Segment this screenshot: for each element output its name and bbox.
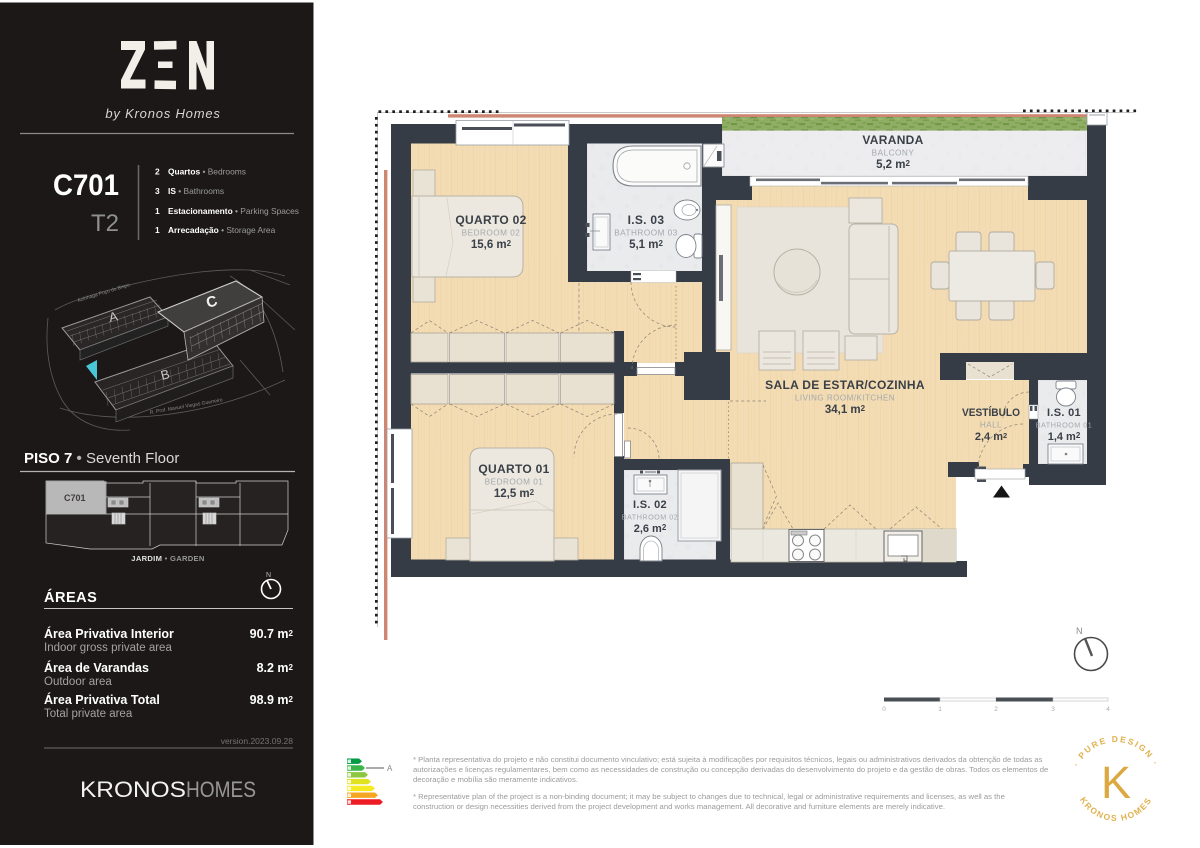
- svg-text:2,4 m2: 2,4 m2: [975, 431, 1007, 443]
- svg-text:BALCONY: BALCONY: [872, 149, 915, 158]
- svg-text:decoração e mobília são merame: decoração e mobília são meramente indica…: [413, 775, 578, 784]
- svg-text:BATHROOM 03: BATHROOM 03: [614, 229, 678, 238]
- svg-text:0: 0: [882, 706, 886, 713]
- svg-text:HALL: HALL: [980, 421, 1002, 430]
- svg-text:T2: T2: [91, 210, 119, 237]
- svg-text:SALA DE ESTAR/COZINHA: SALA DE ESTAR/COZINHA: [765, 378, 925, 392]
- svg-text:1: 1: [155, 206, 160, 216]
- svg-text:C701: C701: [64, 493, 86, 503]
- svg-text:N: N: [1076, 626, 1083, 636]
- svg-text:3: 3: [155, 186, 160, 196]
- svg-text:1: 1: [938, 706, 942, 713]
- svg-text:8.2 m2: 8.2 m2: [257, 661, 294, 675]
- svg-text:JARDIM • GARDEN: JARDIM • GARDEN: [131, 554, 204, 563]
- svg-text:Estacionamento • Parking Space: Estacionamento • Parking Spaces: [168, 206, 299, 216]
- svg-text:3: 3: [1051, 706, 1055, 713]
- svg-text:I.S. 01: I.S. 01: [1047, 407, 1081, 419]
- svg-text:IS • Bathrooms: IS • Bathrooms: [168, 186, 224, 196]
- svg-text:Total private area: Total private area: [44, 708, 133, 720]
- svg-text:Outdoor area: Outdoor area: [44, 676, 112, 688]
- svg-text:Arrecadação • Storage Area: Arrecadação • Storage Area: [168, 225, 276, 235]
- svg-text:VARANDA: VARANDA: [862, 133, 923, 147]
- svg-text:5,2 m2: 5,2 m2: [876, 159, 910, 171]
- svg-text:ÁREAS: ÁREAS: [44, 589, 97, 606]
- svg-text:I.S. 02: I.S. 02: [633, 499, 667, 511]
- svg-text:QUARTO 01: QUARTO 01: [478, 462, 549, 476]
- svg-text:15,6 m2: 15,6 m2: [471, 239, 512, 251]
- svg-text:A: A: [387, 764, 393, 773]
- svg-text:12,5 m2: 12,5 m2: [494, 488, 535, 500]
- svg-text:QUARTO 02: QUARTO 02: [455, 213, 526, 227]
- svg-text:C701: C701: [53, 169, 119, 202]
- svg-text:34,1 m2: 34,1 m2: [825, 404, 866, 416]
- svg-text:90.7 m2: 90.7 m2: [250, 627, 294, 641]
- svg-text:K: K: [1101, 757, 1131, 808]
- svg-text:BATHROOM 02: BATHROOM 02: [622, 513, 679, 522]
- svg-text:KRONOSHOMES: KRONOSHOMES: [80, 777, 256, 802]
- svg-text:BEDROOM 01: BEDROOM 01: [485, 478, 544, 487]
- svg-text:by Kronos Homes: by Kronos Homes: [105, 106, 220, 121]
- svg-text:N: N: [266, 572, 271, 579]
- svg-text:Área de Varandas: Área de Varandas: [44, 660, 149, 675]
- svg-text:construction or design necessi: construction or design necessities deriv…: [413, 802, 945, 811]
- svg-text:PISO 7 • Seventh Floor: PISO 7 • Seventh Floor: [24, 450, 179, 467]
- svg-text:Quartos • Bedrooms: Quartos • Bedrooms: [168, 167, 246, 177]
- svg-text:2: 2: [155, 167, 160, 177]
- svg-text:1: 1: [155, 225, 160, 235]
- svg-text:BEDROOM 02: BEDROOM 02: [462, 229, 521, 238]
- svg-text:5,1 m2: 5,1 m2: [629, 239, 663, 251]
- svg-text:I.S. 03: I.S. 03: [628, 213, 665, 227]
- svg-text:* Representative plan of the p: * Representative plan of the project is …: [413, 792, 1005, 801]
- svg-text:Indoor gross private area: Indoor gross private area: [44, 642, 172, 654]
- svg-text:* Planta representativa do pro: * Planta representativa do projeto e não…: [413, 755, 1043, 764]
- svg-text:4: 4: [1106, 706, 1110, 713]
- svg-text:2: 2: [994, 706, 998, 713]
- svg-text:Área Privativa Interior: Área Privativa Interior: [44, 626, 174, 641]
- svg-text:version.2023.09.28: version.2023.09.28: [221, 736, 294, 746]
- svg-text:VESTÍBULO: VESTÍBULO: [962, 406, 1020, 419]
- svg-text:98.9 m2: 98.9 m2: [250, 693, 294, 707]
- svg-text:Área Privativa Total: Área Privativa Total: [44, 692, 160, 707]
- svg-text:BATHROOM 01: BATHROOM 01: [1036, 421, 1093, 430]
- svg-text:LIVING ROOM/KITCHEN: LIVING ROOM/KITCHEN: [795, 394, 895, 403]
- svg-text:autorizações e licenças regula: autorizações e licenças regulamentares, …: [413, 765, 1048, 774]
